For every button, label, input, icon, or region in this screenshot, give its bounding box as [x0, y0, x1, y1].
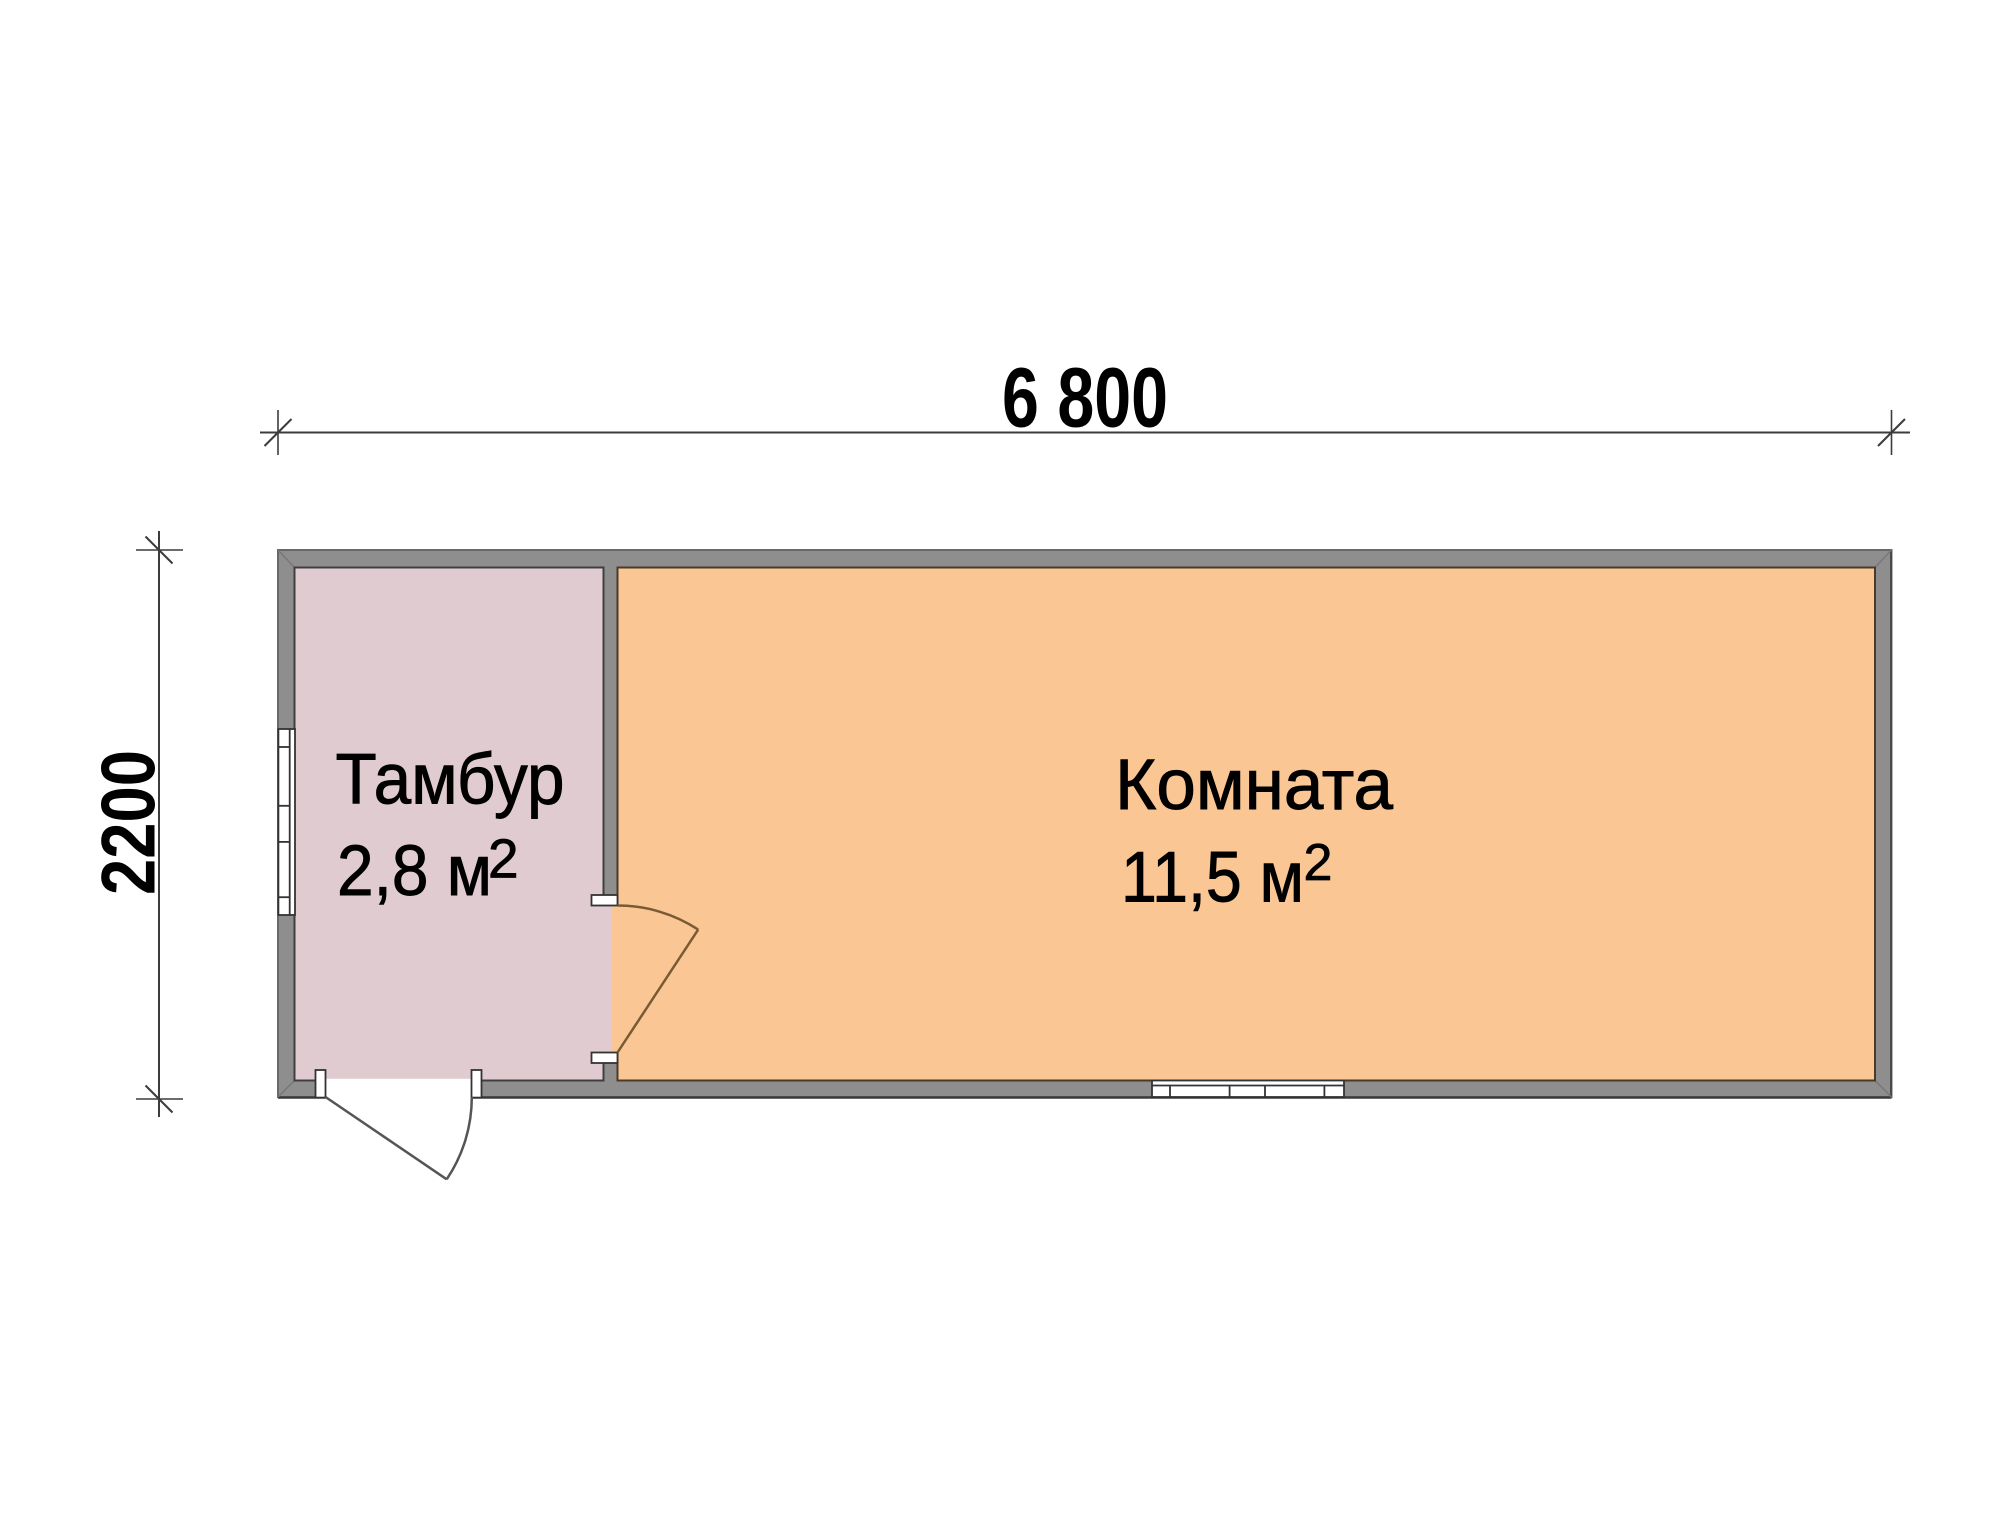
svg-text:2200: 2200	[87, 750, 172, 895]
svg-text:2: 2	[1304, 834, 1333, 892]
svg-text:Комната: Комната	[1115, 746, 1394, 825]
svg-text:2,8 м: 2,8 м	[337, 832, 492, 911]
svg-text:Тамбур: Тамбур	[336, 741, 565, 820]
svg-text:2: 2	[488, 828, 519, 890]
svg-text:11,5 м: 11,5 м	[1121, 839, 1304, 918]
svg-text:6 800: 6 800	[1002, 351, 1168, 445]
